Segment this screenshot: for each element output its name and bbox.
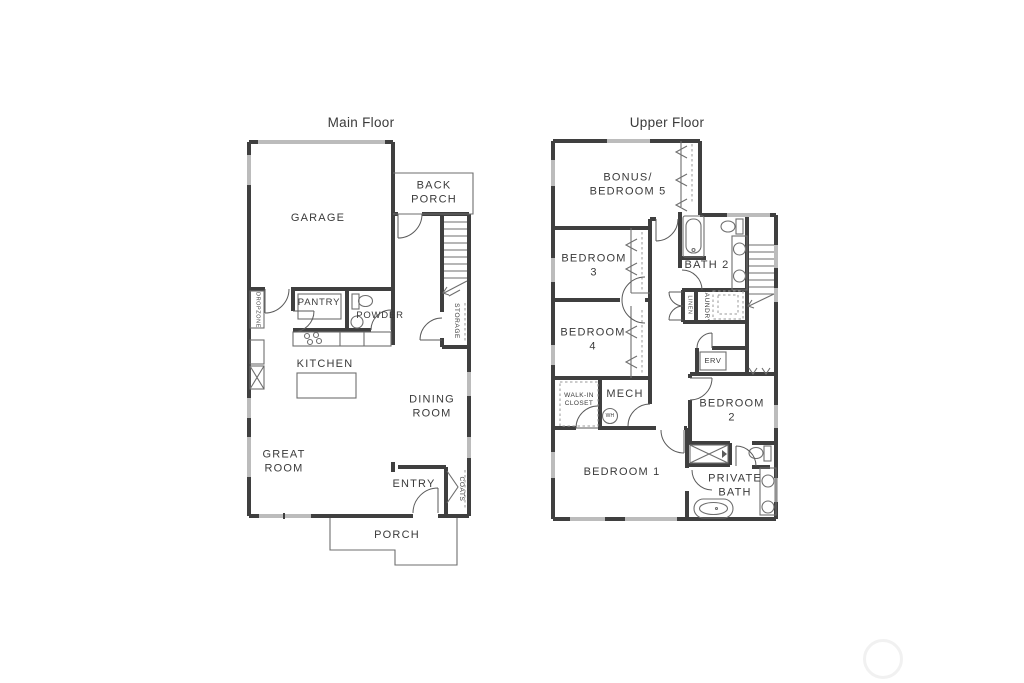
main-floor-stairs [443,222,467,510]
room-label-powder: POWDER [356,310,404,322]
room-label-erv: ERV [704,356,721,366]
room-label-dining-room: DINING ROOM [409,393,455,422]
room-label-porch: PORCH [374,528,420,542]
room-label-bonus-bedroom5: BONUS/ BEDROOM 5 [590,171,667,200]
room-label-private-bath: PRIVATE BATH [708,472,762,501]
room-label-mech: MECH [606,387,643,401]
room-label-bedroom4: BEDROOM 4 [560,326,625,355]
room-label-storage: STORAGE [452,303,460,339]
main-floor-title: Main Floor [328,114,395,132]
room-label-bedroom2: BEDROOM 2 [699,397,764,426]
room-label-laundry: LAUNDRY [702,288,710,323]
upper-floor-stairs [748,245,774,308]
room-label-kitchen: KITCHEN [297,357,354,371]
floor-plan-drawing [0,0,1024,683]
water-heater-label: WH [606,413,615,420]
room-label-bedroom3: BEDROOM 3 [561,252,626,281]
upper-floor-title: Upper Floor [630,114,705,132]
room-label-linen: LINEN [685,295,692,314]
room-label-back-porch: BACK PORCH [411,179,457,208]
floor-plan-page: Main Floor GARAGE BACK PORCH PANTRY POWD… [0,0,1024,683]
room-label-dropzone: DROPZONE [253,292,260,328]
room-label-bedroom1: BEDROOM 1 [584,465,661,479]
room-label-bath2: BATH 2 [685,258,730,272]
room-label-pantry: PANTRY [298,297,340,309]
room-label-coats: COATS [457,477,465,502]
room-label-entry: ENTRY [392,477,435,491]
room-label-great-room: GREAT ROOM [262,448,305,477]
room-label-garage: GARAGE [291,211,345,225]
main-floor-outlines [250,173,473,565]
watermark-logo-circle [863,639,903,679]
room-label-walk-in-closet: WALK-IN CLOSET [564,392,594,408]
